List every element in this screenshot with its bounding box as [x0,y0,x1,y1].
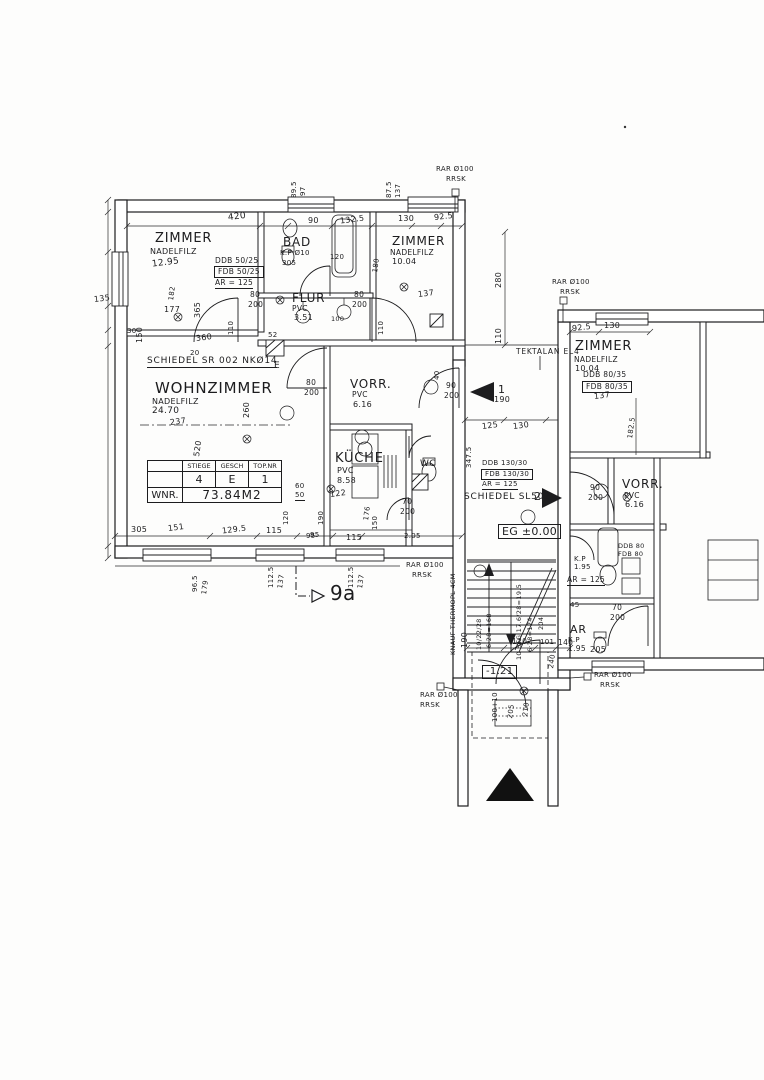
dim-left-177: 177 [164,306,180,314]
dim-k-115: 115 [346,534,362,542]
room-label-kueche: KÜCHE [335,452,384,465]
table-header-stiege: STIEGE [183,461,216,472]
dim-bv-1125a: 112.5 [268,566,275,588]
dim-flur-110a: 110 [228,321,235,335]
dim-st-140: 140 [558,639,573,647]
dim-wz-door-w: 80 [306,379,316,387]
stair-text-3: 10 STG 17.6/28=19.5 [516,584,523,660]
bath-height-label: 1.95 [574,564,591,571]
room-label-bad: BAD [283,236,311,248]
dim-flur-52: 52 [268,332,278,339]
stair-text-1: 10/22/28 [476,618,483,650]
room-finish-zimmer-ne: NADELFILZ [390,249,434,257]
rrsk-label-top: RRSK [446,176,466,183]
dim-k-150: 150 [372,516,379,530]
dim-flur-door2-w: 80 [354,291,364,299]
floorplan-linework [0,0,764,1080]
marker-2-label: 2 [534,491,541,502]
level-eg-label: EG ±0.00 [498,524,561,539]
dim-b-95: 95 [310,532,320,539]
section-triangle-1 [470,382,494,402]
room-finish-zimmer-e: NADELFILZ [574,356,618,364]
dim-ne-110: 110 [495,328,503,344]
dim-bad-120: 120 [330,254,344,261]
dim-top-90: 90 [308,217,319,225]
dim-r-45: 45 [570,602,580,609]
table-header-gesch: GESCH [216,461,249,472]
bath-kp-label: K.P [574,556,586,563]
ddb-mid-2: FDB 130/30 [481,469,533,480]
apartment-info-table: STIEGE GESCH TOP.NR 4 E 1 WNR. 73.84M2 [147,460,282,503]
dim-r-205: 205 [590,646,606,654]
dim-flur-door1-w: 80 [250,291,260,299]
room-finish-vorraum: PVC [352,391,368,399]
dim-st-120: 120 [512,638,527,646]
dim-mid-190: 190 [494,396,510,404]
dim-flur-door1-h: 200 [248,301,263,309]
ddb-e-1: DDB 80/35 [583,371,626,379]
dim-left-365: 365 [194,302,202,318]
room-finish-kueche: PVC [337,467,354,475]
dim-topv-97: 97 [300,186,307,196]
dim-flur-100: 100 [331,316,344,323]
dim-r-door1-w: 90 [590,484,600,492]
level-entry-label: -1.21 [482,665,517,679]
room-area-flur: 3.51 [294,314,313,322]
dim-bad-305: 305 [282,260,296,267]
chimney-e-label: E [274,362,280,371]
dim-st-101: 101 [540,639,554,646]
ddb-nw-3: AR = 125 [215,279,253,289]
room-label-zimmer-nw: ZIMMER [155,232,212,245]
room-finish-wohnzimmer: NADELFILZ [152,398,199,406]
dim-bv-965: 96.5 [192,575,199,592]
bath-ar-label: AR = 125 [567,576,605,586]
dim-b-305: 305 [131,526,147,534]
ddb-nw-2: FDB 50/25 [214,266,264,278]
rrsk-label-porch-l: RRSK [420,702,440,709]
tektalan-label: TEKTALAN EL4 [516,348,580,356]
dim-r-door2-h: 200 [610,614,625,622]
dim-left-30: 30 [127,328,137,335]
rrsk-label-mid: RRSK [412,572,432,579]
table-value-stiege: 4 [183,472,216,488]
room-note-bad: K.P Ø10 [280,250,310,257]
dim-r-130: 130 [604,322,620,330]
room-area-vorraum: 6.16 [353,401,372,409]
room-label-wc: WC [420,460,436,469]
dim-ne-280: 280 [495,272,503,288]
section-line [296,566,310,596]
room-label-ar: AR [570,624,587,635]
room-label-flur: FLUR [292,292,325,304]
ddb-r-2: FDB 80 [618,551,643,558]
room-area-vorraum-e: 6.16 [625,501,644,509]
rar-label-mid: RAR Ø100 [406,562,444,569]
dim-k-190: 190 [318,511,325,525]
dim-bv-1125b: 112.5 [348,566,355,588]
stair-text-5: 204 [538,617,545,630]
dim-wz-door-h: 200 [304,389,319,397]
rar-label-right: RAR Ø100 [552,279,590,286]
ddb-nw-1: DDB 50/25 [215,257,258,265]
dim-k-70: 70 [402,498,412,506]
dim-left-150: 150 [136,327,144,343]
section-arrowhead [312,590,324,602]
room-finish-vorraum-e: PVC [624,492,640,500]
rrsk-label-porch-r: RRSK [600,682,620,689]
room-finish-flur: PVC [292,305,308,313]
scan-speck [624,126,626,128]
dim-k-200: 200 [400,508,415,516]
table-area-value: 73.84M2 [183,488,282,503]
room-label-zimmer-e: ZIMMER [575,340,632,353]
dim-topv-137: 137 [395,184,402,198]
dim-p-100: 100+10 [492,692,499,722]
rar-label-top: RAR Ø100 [436,166,474,173]
marker-1-label: 1 [498,384,505,395]
ddb-mid-1: DDB 130/30 [482,460,527,467]
dim-topv-895: 89.5 [291,181,298,198]
dim-topv-875: 87.5 [386,181,393,198]
room-label-zimmer-ne: ZIMMER [392,235,445,247]
room-label-wohnzimmer: WOHNZIMMER [155,381,273,396]
dim-flur-110b: 110 [378,321,385,335]
ddb-mid-3: AR = 125 [482,481,518,490]
dim-k-205: 2.05 [404,533,421,540]
table-value-topnr: 1 [249,472,282,488]
dim-k-60: 60 [295,483,305,490]
table-value-gesch: E [216,472,249,488]
dim-r-door1-h: 200 [588,494,603,502]
rrsk-label-right: RRSK [560,289,580,296]
stair-text-2: 6·28=168 [486,613,493,648]
dim-b-115: 115 [266,527,282,535]
room-area-zimmer-ne: 10.04 [392,258,416,266]
schiedel-1-label: SCHIEDEL SR 002 NKØ14 [147,357,277,368]
dim-vorr-door-h: 200 [444,392,459,400]
room-area-wohnzimmer: 24.70 [152,407,179,416]
dim-vorr-door-w: 90 [446,382,456,390]
room-area-kueche: 8.58 [337,477,356,485]
room-label-vorraum-e: VORR. [622,478,664,490]
dim-vorr-40: 40 [434,370,441,380]
table-header-topnr: TOP.NR [249,461,282,472]
dim-r-door2-w: 70 [612,604,622,612]
outer-walls [115,200,764,806]
dim-flur-door2-h: 200 [352,301,367,309]
floor-plan-sheet: ZIMMER NADELFILZ 12.95 BAD K.P Ø10 ZIMME… [0,0,764,1080]
dim-mid-3475: 347.5 [466,446,473,468]
north-arrow [486,768,534,801]
room-finish-zimmer-nw: NADELFILZ [150,248,197,256]
ddb-r-1: DDB 80 [618,543,645,550]
dim-left-20: 20 [190,350,200,357]
dim-st-190: 190 [461,632,469,648]
room-label-vorraum: VORR. [350,378,392,390]
rar-label-porch-r: RAR Ø100 [594,672,632,679]
dim-wz-260: 260 [243,402,251,418]
stair-text-4: 6·28=124 [527,617,534,652]
dim-top-130: 130 [398,215,414,223]
rar-label-porch-l: RAR Ø100 [420,692,458,699]
table-wnr-label: WNR. [148,488,183,503]
dim-k-120: 120 [283,511,290,525]
knauf-label: KNAUF THERMOPL 4CM [450,573,457,655]
dim-k-50: 50 [295,492,305,501]
